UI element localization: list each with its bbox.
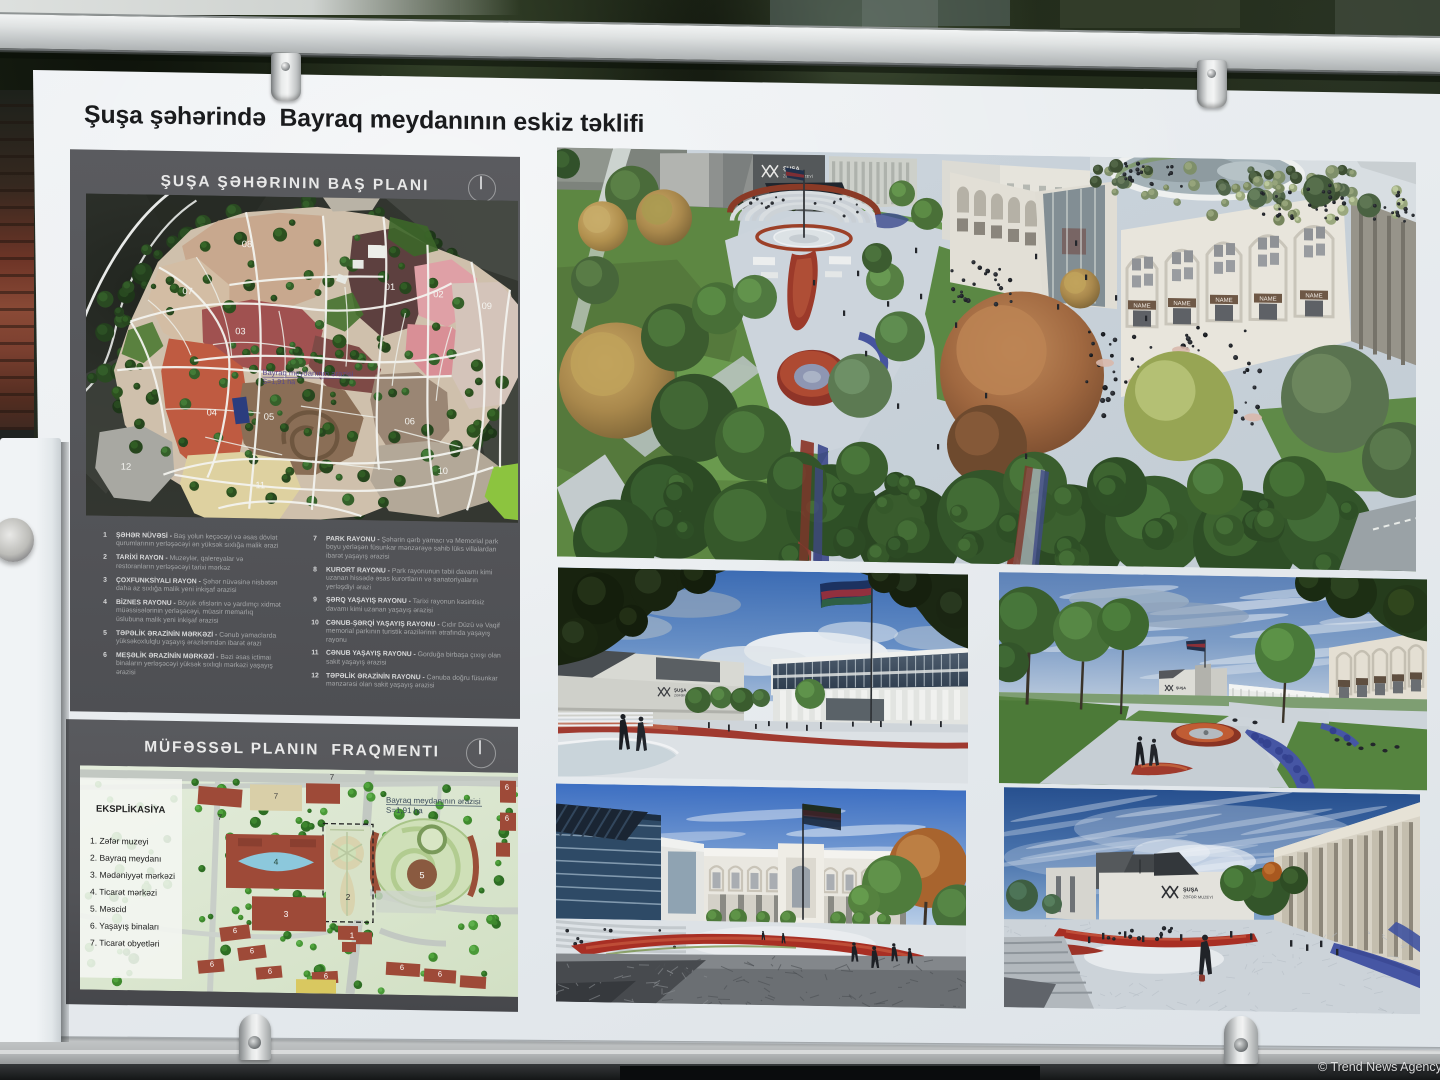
svg-text:1. Zəfər muzeyi: 1. Zəfər muzeyi [90,836,149,847]
svg-text:08: 08 [242,239,252,249]
svg-text:6: 6 [505,783,509,792]
svg-text:NAME: NAME [1133,303,1150,309]
svg-text:7: 7 [218,813,223,822]
svg-text:6: 6 [268,967,272,976]
svg-text:11: 11 [255,480,265,490]
svg-text:5. Məscid: 5. Məscid [90,904,127,915]
svg-text:6: 6 [250,946,254,955]
svg-text:7: 7 [330,773,335,782]
svg-text:6: 6 [505,814,509,823]
svg-text:ŞUŞA: ŞUŞA [674,688,687,693]
svg-text:EKSPLİKASİYA: EKSPLİKASİYA [96,804,165,816]
svg-text:3. Mədəniyyət mərkəzi: 3. Mədəniyyət mərkəzi [90,870,175,881]
svg-text:6: 6 [210,960,214,969]
svg-text:6: 6 [400,963,404,972]
svg-text:2. Bayraq meydanı: 2. Bayraq meydanı [90,853,161,864]
svg-text:02: 02 [433,289,443,299]
svg-text:12: 12 [121,462,131,472]
svg-text:4. Ticarət mərkəzi: 4. Ticarət mərkəzi [90,887,157,898]
svg-text:05: 05 [264,412,274,422]
svg-text:01: 01 [385,282,395,292]
svg-text:ZƏFƏR MUZEYİ: ZƏFƏR MUZEYİ [1183,894,1213,900]
svg-text:7. Ticarət obyetləri: 7. Ticarət obyetləri [90,938,160,949]
svg-text:06: 06 [405,416,415,426]
svg-text:4: 4 [274,857,279,867]
svg-text:NAME: NAME [1215,298,1232,304]
svg-text:6. Yaşayış binaları: 6. Yaşayış binaları [90,921,159,932]
svg-text:S=1,91 ha: S=1,91 ha [262,378,295,387]
svg-text:03: 03 [235,326,245,336]
svg-text:04: 04 [207,407,217,417]
svg-text:09: 09 [482,301,492,311]
svg-text:S=1,91 ha: S=1,91 ha [386,806,423,816]
svg-text:5: 5 [419,870,424,880]
svg-text:Bayraq meydanının ərazisi: Bayraq meydanının ərazisi [262,368,353,379]
svg-text:NAME: NAME [1305,293,1322,299]
svg-text:6: 6 [438,969,442,978]
svg-text:NAME: NAME [1259,297,1276,303]
svg-text:6: 6 [233,926,237,935]
svg-text:10: 10 [438,466,448,476]
svg-text:6: 6 [324,972,328,981]
svg-text:2: 2 [346,892,351,902]
svg-text:7: 7 [274,792,279,801]
svg-text:ŞUŞA: ŞUŞA [1176,686,1186,690]
svg-text:3: 3 [284,909,289,919]
svg-text:07: 07 [182,286,192,296]
svg-text:1: 1 [350,931,355,940]
svg-text:ŞUŞA: ŞUŞA [1183,887,1198,893]
svg-text:NAME: NAME [1173,301,1190,307]
